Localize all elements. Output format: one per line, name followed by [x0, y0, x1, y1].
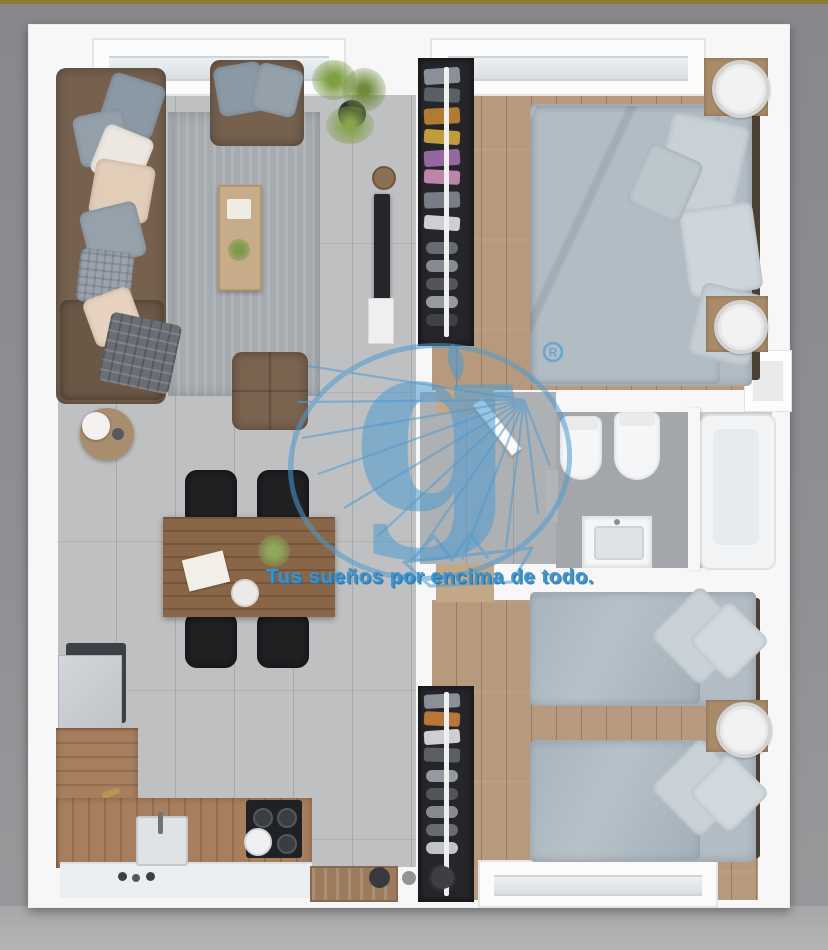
- shoes: [426, 242, 458, 254]
- shoes: [426, 278, 458, 290]
- washbasin: [594, 526, 644, 560]
- window-glass: [448, 56, 687, 81]
- shoes: [426, 806, 458, 818]
- hanging-clothes: [424, 729, 461, 745]
- burner: [253, 808, 273, 828]
- hanging-clothes: [424, 693, 461, 709]
- table-lamp-sphere: [82, 412, 110, 440]
- coffee-table: [218, 185, 262, 291]
- table-plant: [228, 239, 250, 261]
- shoes: [426, 842, 458, 854]
- hanging-clothes: [423, 149, 460, 167]
- counter-item: [118, 872, 127, 881]
- table-tray: [227, 199, 251, 219]
- round-lamp: [716, 702, 772, 758]
- plant-foliage: [326, 106, 374, 144]
- carousel-dot-2[interactable]: [402, 871, 416, 885]
- hanging-clothes: [424, 215, 461, 231]
- wardrobe-rail: [444, 692, 449, 895]
- cooktop: [246, 800, 302, 858]
- hanging-clothes: [424, 169, 461, 185]
- dining-table: [163, 517, 335, 617]
- shoes: [426, 788, 458, 800]
- hanging-clothes: [424, 747, 460, 762]
- bathroom-doorway: [546, 470, 558, 522]
- burner: [277, 808, 297, 828]
- table-decor: [112, 428, 124, 440]
- window-glass: [494, 875, 702, 896]
- media-console: [368, 298, 394, 344]
- open-book: [182, 550, 230, 591]
- shoes: [426, 770, 458, 782]
- refrigerator: [58, 655, 122, 733]
- pot: [244, 828, 272, 856]
- bidet: [614, 412, 660, 480]
- kitchen-cabinet-front: [60, 862, 312, 898]
- ottoman: [232, 352, 308, 430]
- carousel-dot-3[interactable]: [431, 866, 454, 889]
- toilet: [560, 416, 602, 480]
- hanging-clothes: [424, 107, 461, 125]
- bedroom2-window: [478, 860, 718, 908]
- wall-clock: [372, 166, 396, 190]
- bathroom-divider-wall: [688, 408, 700, 570]
- potted-plant: [312, 60, 386, 144]
- shoes: [426, 314, 458, 326]
- shoes: [426, 260, 458, 272]
- hanging-clothes: [424, 129, 461, 145]
- bidet-tank: [619, 414, 655, 426]
- bed1-pillow: [678, 201, 764, 298]
- top-accent-line: [0, 0, 828, 4]
- burner: [277, 834, 297, 854]
- bathtub: [700, 414, 776, 570]
- carousel-dot-1[interactable]: [369, 867, 390, 888]
- kitchen-sink: [136, 816, 188, 866]
- wardrobe-rail: [444, 67, 449, 338]
- dining-chair: [257, 612, 309, 668]
- basin-faucet: [614, 519, 620, 525]
- hanging-clothes: [424, 87, 461, 103]
- bedroom2-doorway: [436, 564, 494, 602]
- faucet: [158, 812, 163, 834]
- floor-plan-photo: g R Tus sueños por encima de todo. Tus s…: [0, 0, 828, 950]
- toilet-tank: [564, 418, 598, 430]
- dining-chair: [185, 612, 237, 668]
- plaid-blanket: [98, 311, 183, 394]
- bottom-background-band: [0, 906, 828, 950]
- table-centerpiece-plant: [258, 535, 290, 567]
- washbasin-vanity: [582, 516, 652, 568]
- hanging-clothes: [423, 67, 460, 85]
- bathtub-basin: [713, 429, 759, 545]
- round-lamp: [714, 300, 768, 354]
- counter-item: [146, 872, 155, 881]
- bedroom1-wardrobe: [418, 58, 474, 346]
- shoes: [426, 824, 458, 836]
- counter-item: [132, 874, 140, 882]
- hanging-clothes: [424, 191, 461, 208]
- shoes: [426, 296, 458, 308]
- bowl: [231, 579, 259, 607]
- round-lamp: [712, 60, 770, 118]
- hanging-clothes: [424, 711, 461, 727]
